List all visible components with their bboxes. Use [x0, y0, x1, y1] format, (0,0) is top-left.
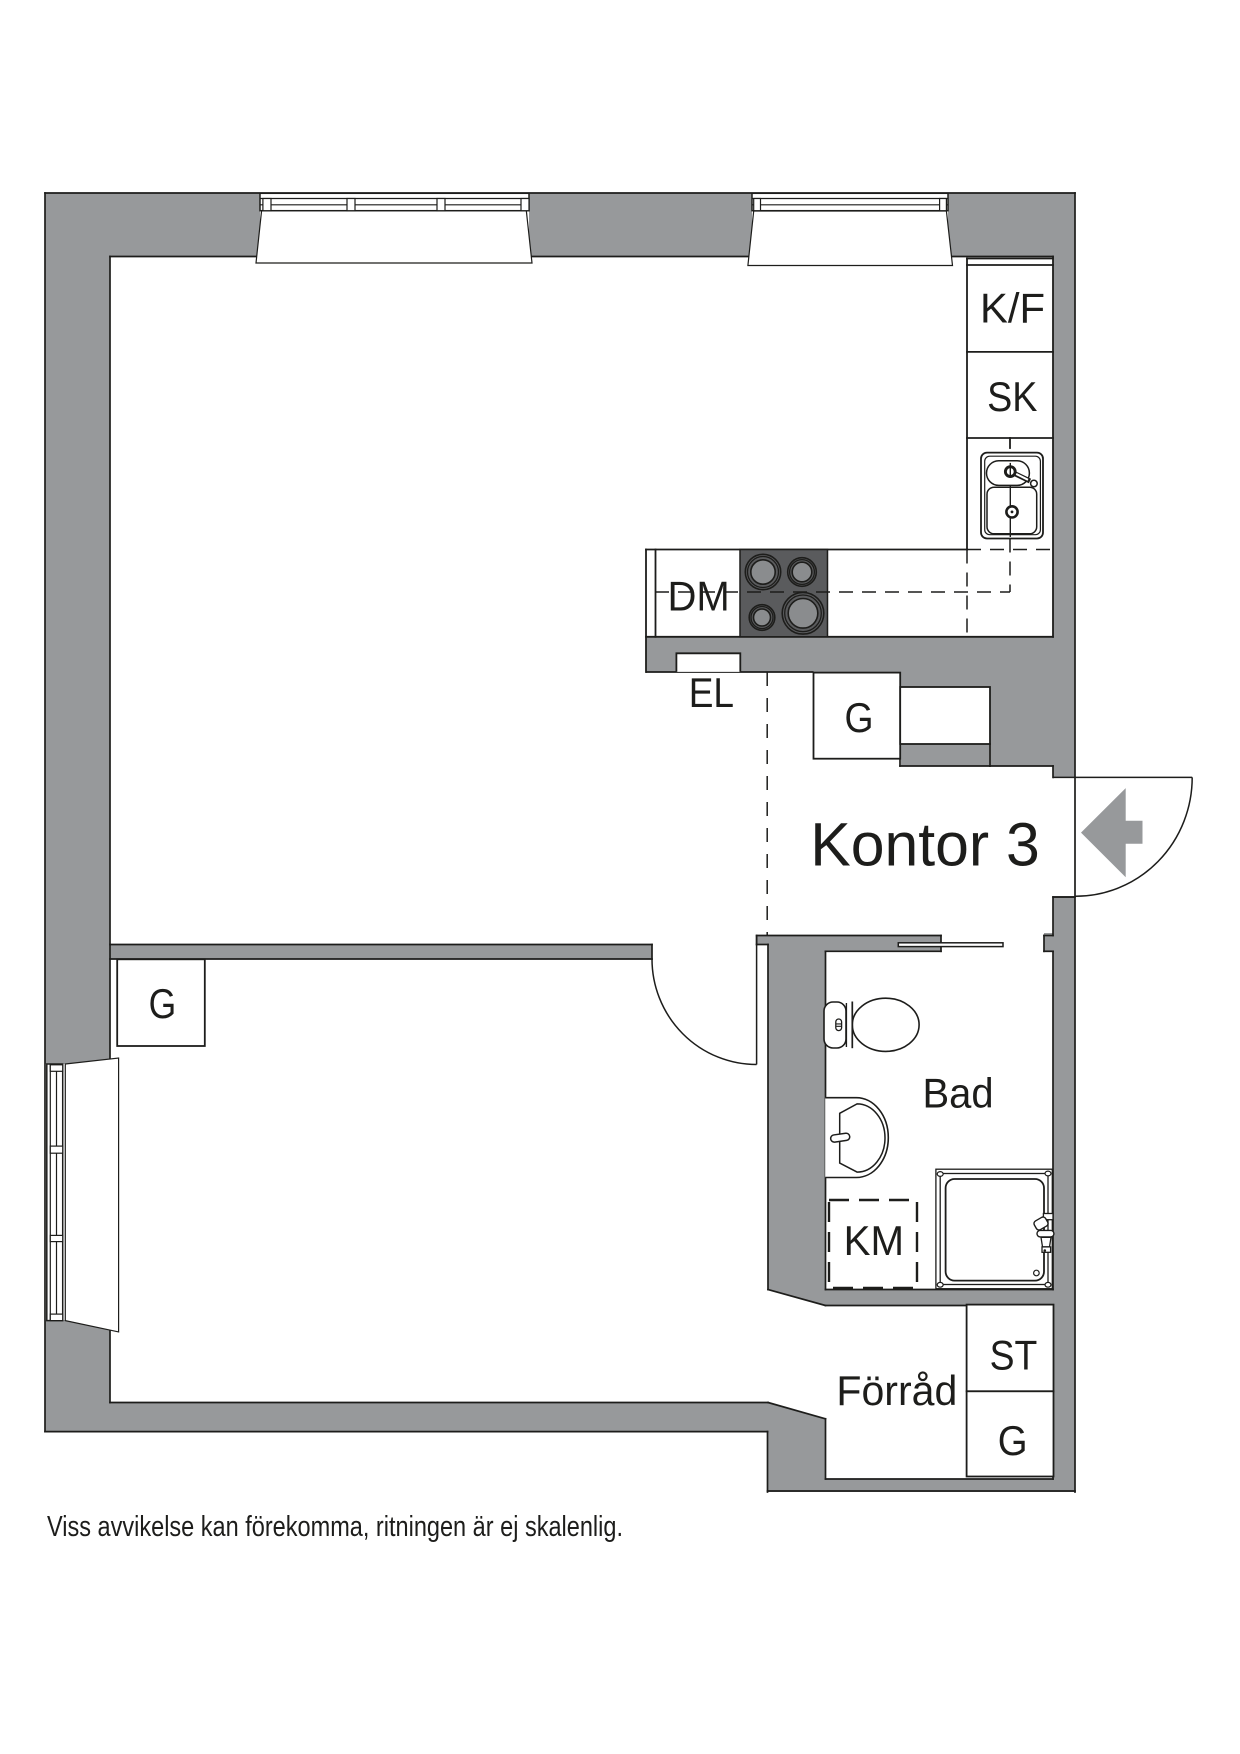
- svg-text:Bad: Bad: [923, 1070, 994, 1117]
- svg-text:Viss avvikelse kan förekomma,: Viss avvikelse kan förekomma, ritningen …: [47, 1511, 623, 1543]
- svg-text:DM: DM: [668, 572, 730, 619]
- svg-text:ST: ST: [990, 1331, 1038, 1378]
- svg-text:K/F: K/F: [980, 284, 1045, 331]
- svg-text:KM: KM: [844, 1217, 904, 1264]
- svg-text:SK: SK: [987, 373, 1037, 420]
- svg-text:EL: EL: [689, 669, 734, 716]
- svg-text:G: G: [845, 694, 874, 741]
- svg-text:Kontor 3: Kontor 3: [810, 811, 1040, 879]
- svg-text:Förråd: Förråd: [836, 1367, 957, 1414]
- svg-text:G: G: [149, 980, 177, 1027]
- svg-text:G: G: [998, 1417, 1028, 1464]
